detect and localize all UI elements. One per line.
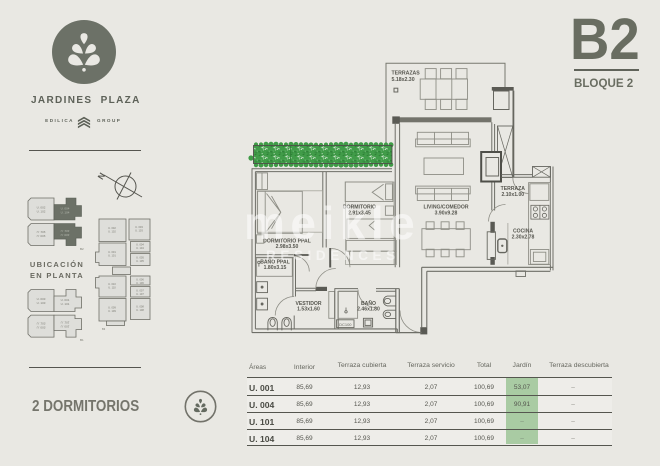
svg-text:U. 003: U. 003	[135, 225, 143, 229]
svg-text:U. 104: U. 104	[136, 246, 144, 250]
svg-text:U. 101: U. 101	[108, 254, 116, 258]
svg-text:U. 005: U. 005	[136, 256, 144, 260]
svg-text:U. 004: U. 004	[136, 243, 144, 247]
svg-text:U. 001: U. 001	[108, 250, 116, 254]
svg-text:3.90x9.28: 3.90x9.28	[435, 210, 458, 216]
svg-text:U. 106: U. 106	[136, 281, 144, 285]
svg-text:U. 108: U. 108	[136, 308, 144, 312]
svg-text:DC100: DC100	[339, 322, 352, 327]
svg-text:5.18x2.30: 5.18x2.30	[392, 77, 415, 83]
svg-text:meikle: meikle	[244, 197, 420, 249]
svg-text:U. 006: U. 006	[136, 278, 144, 282]
svg-text:1.80x3.15: 1.80x3.15	[264, 265, 287, 271]
svg-text:RESIDENCES: RESIDENCES	[266, 248, 400, 263]
svg-text:U. 109: U. 109	[108, 309, 116, 313]
svg-text:U. 101: U. 101	[61, 302, 70, 306]
svg-text:2.46x1.80: 2.46x1.80	[357, 307, 380, 313]
svg-text:U. 009: U. 009	[108, 306, 116, 310]
svg-text:U. 010: U. 010	[108, 282, 116, 286]
svg-text:TERRAZAS: TERRAZAS	[392, 71, 421, 77]
svg-text:U. 102: U. 102	[37, 210, 46, 214]
svg-text:U. 008: U. 008	[136, 305, 144, 309]
svg-text:N: N	[95, 171, 107, 182]
svg-text:U. 007: U. 007	[136, 289, 144, 293]
svg-text:B1: B1	[80, 338, 84, 342]
svg-text:B3: B3	[102, 327, 106, 331]
svg-text:U. 002: U. 002	[108, 226, 116, 230]
svg-text:U. 103: U. 103	[37, 301, 46, 305]
svg-text:U. 105: U. 105	[136, 259, 144, 263]
svg-text:U. 107: U. 107	[136, 292, 144, 296]
svg-text:1.53x1.60: 1.53x1.60	[297, 307, 320, 313]
svg-text:U. 104: U. 104	[61, 211, 70, 215]
svg-text:B2: B2	[80, 247, 84, 251]
svg-text:2.30x2.78: 2.30x2.78	[512, 235, 535, 241]
svg-text:2.10x1.00: 2.10x1.00	[501, 192, 524, 198]
svg-text:U. 110: U. 110	[108, 286, 116, 290]
svg-text:U. 103: U. 103	[135, 229, 143, 233]
svg-text:U. 102: U. 102	[108, 230, 116, 234]
